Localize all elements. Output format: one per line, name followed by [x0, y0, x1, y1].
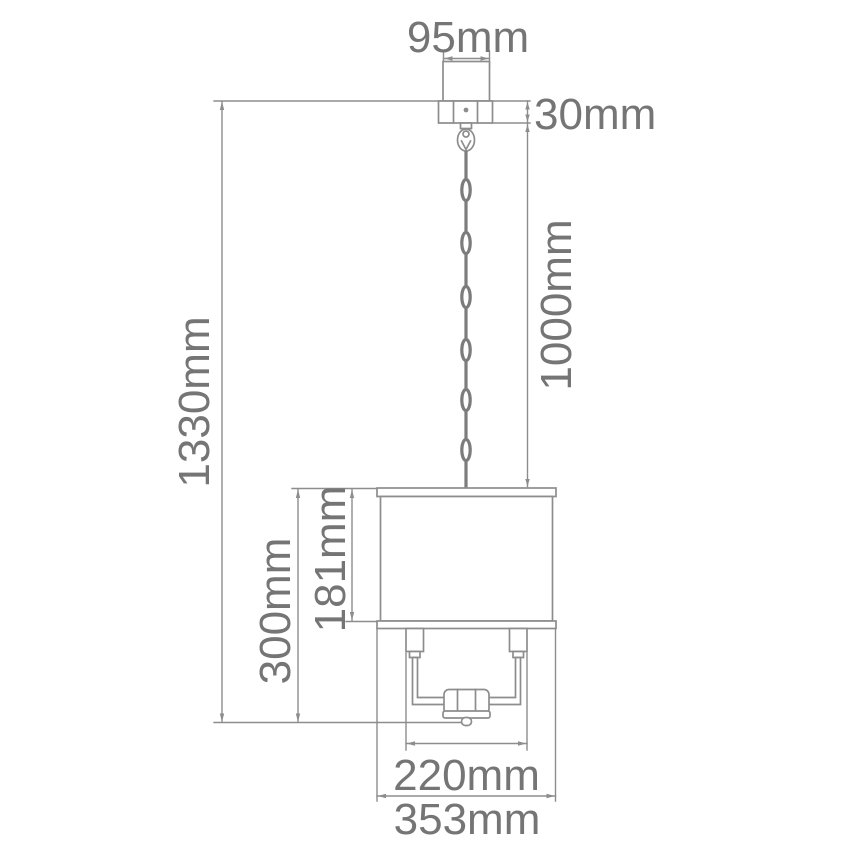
- dim-label-canopy-height: 30mm: [534, 90, 656, 139]
- dim-label-chain-length: 1000mm: [532, 219, 581, 390]
- frame-arm-right: [488, 658, 521, 705]
- chain-link: [462, 340, 470, 361]
- chain-link: [462, 180, 470, 201]
- dimension-diagram: 1330mm 95mm 30mm 1000mm 300mm 181mm: [0, 0, 868, 868]
- dim-label-canopy-width: 95mm: [407, 13, 529, 62]
- dim-label-shade-height: 181mm: [306, 486, 355, 633]
- dim-shade-width: 353mm: [377, 629, 556, 845]
- dim-canopy-height: 30mm: [492, 90, 657, 139]
- shade-bottom-rim: [377, 621, 556, 629]
- canopy-screw-dot: [464, 108, 469, 113]
- lamp-socket-left: [406, 629, 424, 652]
- dim-canopy-width: 95mm: [407, 13, 529, 66]
- chain-link: [462, 287, 470, 308]
- candle-frame: [406, 629, 527, 726]
- frame-arm-left: [413, 658, 446, 705]
- lamp-shade: [377, 488, 556, 629]
- shade-body: [381, 497, 553, 622]
- chain-link: [462, 390, 470, 411]
- ceiling-canopy: [439, 62, 493, 129]
- lamp-socket-right: [510, 629, 528, 652]
- dim-shade-height: 181mm: [306, 486, 378, 633]
- dim-label-shade-width: 353mm: [394, 795, 541, 844]
- shade-top-rim: [377, 488, 556, 497]
- dim-label-overall-drop: 1330mm: [170, 316, 219, 487]
- chain-link: [462, 440, 470, 461]
- dim-chain-length: 1000mm: [525, 123, 581, 487]
- finial-knob: [462, 718, 472, 726]
- dim-label-frame-width: 220mm: [393, 751, 540, 800]
- chain-link: [462, 233, 470, 254]
- dim-label-body-height: 300mm: [251, 538, 300, 685]
- suspension-chain: [458, 129, 475, 488]
- diagram-canvas: 1330mm 95mm 30mm 1000mm 300mm 181mm: [0, 0, 868, 868]
